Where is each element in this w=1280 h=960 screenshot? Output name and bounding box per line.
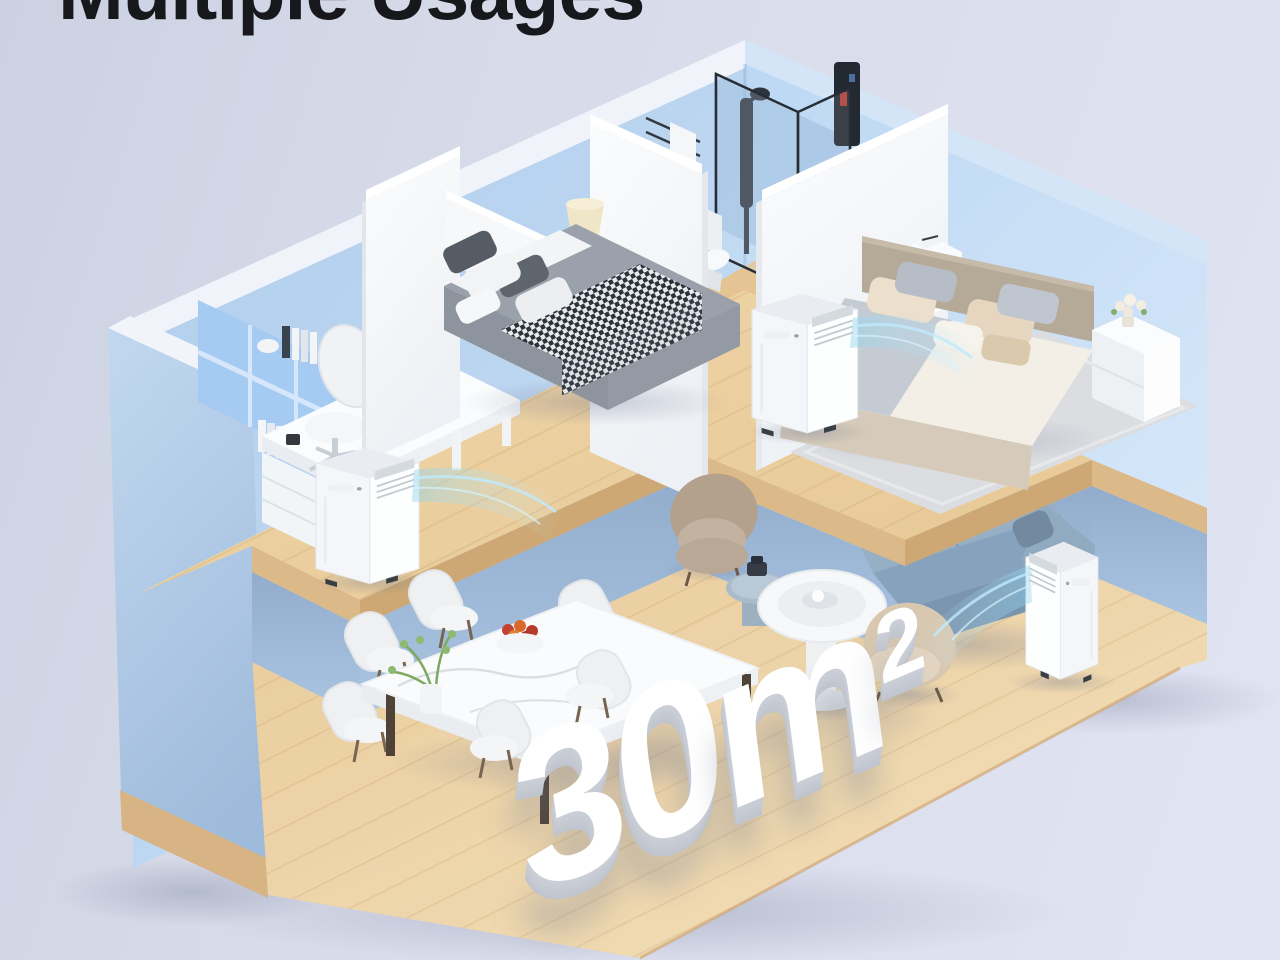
desk-accessory xyxy=(286,434,300,445)
headline: Multiple Usages xyxy=(58,0,1258,38)
marketing-image: Multiple Usages 30m2 xyxy=(0,0,1280,960)
speaker xyxy=(747,562,767,576)
vase xyxy=(420,684,442,714)
dark-book xyxy=(282,326,290,358)
computer-mouse xyxy=(257,339,279,353)
